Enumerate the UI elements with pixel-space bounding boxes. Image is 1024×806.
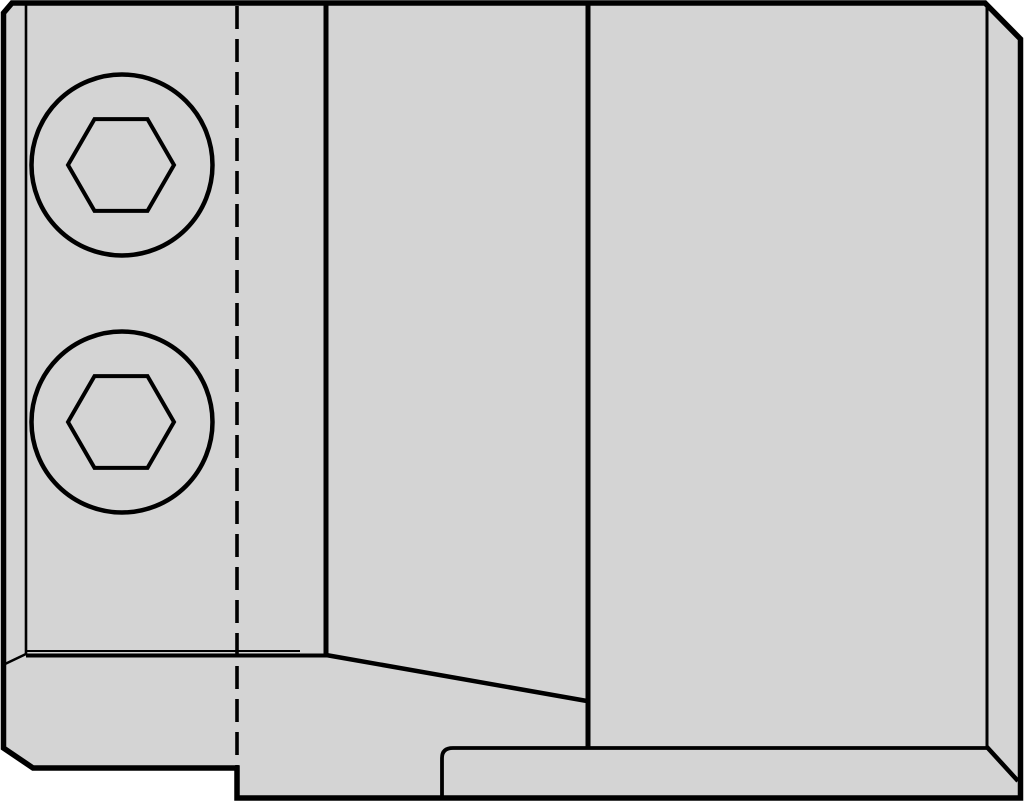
part-drawing-svg [0,0,1024,806]
part-body-outline [4,3,1021,798]
drawing-page [0,0,1024,806]
